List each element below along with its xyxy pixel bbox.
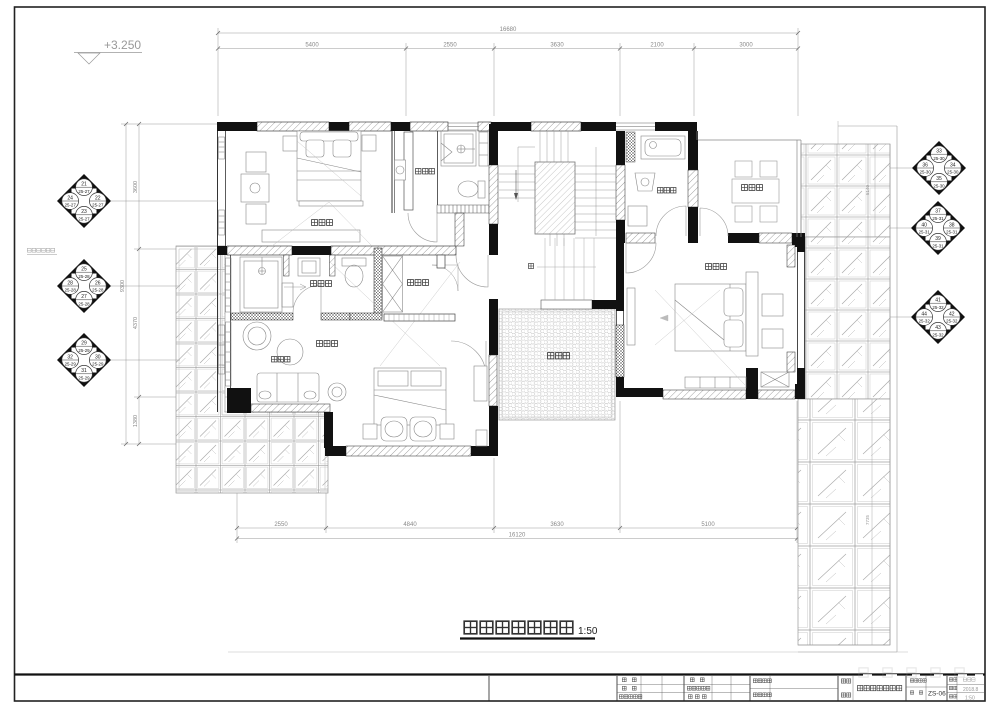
svg-text:25-29: 25-29 — [65, 362, 77, 367]
svg-text:30: 30 — [95, 354, 101, 360]
svg-text:25-32: 25-32 — [919, 319, 931, 324]
svg-text:1380: 1380 — [133, 415, 139, 427]
svg-text:2100: 2100 — [650, 43, 664, 49]
svg-text:5400: 5400 — [305, 43, 319, 49]
svg-text:25-28: 25-28 — [65, 288, 77, 293]
svg-text:25-32: 25-32 — [946, 319, 958, 324]
svg-text:25-30: 25-30 — [947, 170, 959, 175]
svg-text:21: 21 — [81, 182, 87, 188]
svg-text:40: 40 — [921, 222, 927, 228]
svg-text:23: 23 — [81, 209, 87, 215]
svg-text:22: 22 — [95, 195, 101, 201]
svg-text:25-27: 25-27 — [78, 189, 90, 194]
svg-text:25-28: 25-28 — [78, 274, 90, 279]
svg-text:2550: 2550 — [274, 522, 288, 528]
svg-text:25-30: 25-30 — [933, 156, 945, 161]
svg-text:25-31: 25-31 — [946, 230, 958, 235]
svg-text:2018.8: 2018.8 — [963, 687, 979, 693]
svg-text:4370: 4370 — [133, 317, 139, 329]
svg-text:39: 39 — [935, 236, 941, 242]
svg-text:36: 36 — [922, 162, 928, 168]
svg-text:25-27: 25-27 — [92, 203, 104, 208]
svg-text:2550: 2550 — [443, 43, 457, 49]
svg-text:25-30: 25-30 — [920, 170, 932, 175]
svg-text:25-32: 25-32 — [932, 332, 944, 337]
svg-text:32: 32 — [67, 354, 73, 360]
svg-text:27: 27 — [81, 294, 87, 300]
svg-text:24: 24 — [67, 195, 73, 201]
svg-text:4840: 4840 — [403, 522, 417, 528]
svg-text:1:50: 1:50 — [965, 696, 975, 702]
svg-text:5100: 5100 — [701, 522, 715, 528]
svg-text:35: 35 — [936, 176, 942, 182]
svg-text:25-31: 25-31 — [932, 243, 944, 248]
svg-text:16680: 16680 — [500, 27, 517, 33]
svg-text:25-28: 25-28 — [92, 288, 104, 293]
svg-text:38: 38 — [949, 222, 955, 228]
svg-text:25-31: 25-31 — [932, 216, 944, 221]
svg-text:43: 43 — [935, 325, 941, 331]
svg-text:ZS-06: ZS-06 — [928, 691, 946, 698]
svg-text:25-28: 25-28 — [78, 301, 90, 306]
svg-text:28: 28 — [67, 280, 73, 286]
svg-text:29: 29 — [81, 341, 87, 347]
svg-text:1:50: 1:50 — [578, 626, 598, 637]
svg-text:25-29: 25-29 — [78, 375, 90, 380]
svg-text:44: 44 — [921, 311, 927, 317]
svg-text:42: 42 — [949, 311, 955, 317]
svg-text:37: 37 — [935, 209, 941, 215]
svg-text:25: 25 — [81, 267, 87, 273]
svg-text:25-27: 25-27 — [65, 203, 77, 208]
svg-text:25-29: 25-29 — [78, 348, 90, 353]
svg-text:7735: 7735 — [865, 514, 870, 525]
svg-text:16120: 16120 — [509, 533, 526, 539]
svg-text:26: 26 — [95, 280, 101, 286]
svg-text:3000: 3000 — [739, 43, 753, 49]
svg-text:25-32: 25-32 — [932, 305, 944, 310]
svg-text:34: 34 — [950, 162, 956, 168]
svg-text:25-31: 25-31 — [919, 230, 931, 235]
svg-text:25-30: 25-30 — [933, 183, 945, 188]
svg-text:25-29: 25-29 — [92, 362, 104, 367]
svg-text:25-27: 25-27 — [78, 216, 90, 221]
svg-text:41: 41 — [935, 298, 941, 304]
svg-text:3630: 3630 — [550, 43, 564, 49]
svg-text:31: 31 — [81, 368, 87, 374]
svg-text:3600: 3600 — [133, 181, 139, 193]
svg-text:+3.250: +3.250 — [104, 38, 141, 52]
svg-text:5140: 5140 — [865, 184, 870, 195]
svg-text:33: 33 — [936, 149, 942, 155]
svg-text:3630: 3630 — [550, 522, 564, 528]
